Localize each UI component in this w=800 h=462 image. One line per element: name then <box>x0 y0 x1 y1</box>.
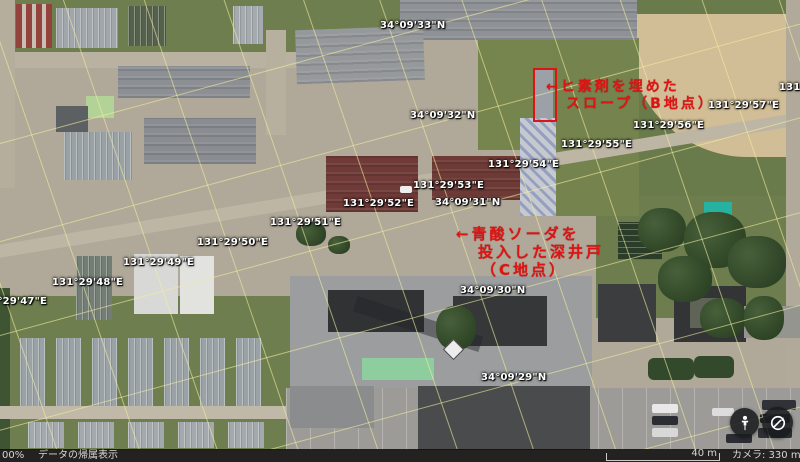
road <box>0 0 15 188</box>
road <box>266 30 286 135</box>
tree <box>728 236 786 288</box>
vehicle <box>400 186 412 193</box>
tree <box>744 296 784 340</box>
greenhouse <box>78 422 114 448</box>
vehicle <box>652 428 678 437</box>
annotation-site-c: ←青酸ソーダを 投入した深井戸 （C地点） <box>456 225 604 279</box>
pegman-icon <box>736 414 754 432</box>
compass-icon <box>768 413 788 433</box>
grid-label: 131°29'54"E <box>488 159 559 170</box>
vehicle <box>652 416 678 425</box>
grid-label: 131°29'57"E <box>708 100 779 111</box>
scale-label: 40 m <box>691 447 717 460</box>
status-bar: 00% データの帰属表示 40 m カメラ: 330 m <box>0 449 800 462</box>
building <box>56 106 88 132</box>
attribution-link[interactable]: データの帰属表示 <box>38 449 118 462</box>
grid-label: 131°29'56"E <box>633 120 704 131</box>
greenhouse <box>178 422 214 448</box>
greenhouse <box>64 132 132 180</box>
greenhouse <box>28 422 64 448</box>
grid-label: 131°29'47"E <box>0 296 47 307</box>
grid-label: 34°09'30"N <box>460 285 525 296</box>
tree <box>700 298 746 338</box>
grid-label: 131°29'55"E <box>561 139 632 150</box>
annotation-site-c-line1: ←青酸ソーダを <box>456 225 604 243</box>
greenhouse <box>92 338 117 406</box>
tree <box>638 208 686 252</box>
grid-label: 34°09'33"N <box>380 20 445 31</box>
building <box>598 284 656 342</box>
greenhouse <box>164 338 189 406</box>
pegman-button[interactable] <box>730 408 759 437</box>
map-viewport[interactable]: 34°09'33"N34°09'32"N34°09'31"N34°09'30"N… <box>0 0 800 462</box>
grid-label: 34°09'31"N <box>435 197 500 208</box>
building <box>16 4 52 48</box>
greenhouse <box>228 422 264 448</box>
grid-label: 34°09'29"N <box>481 372 546 383</box>
annotation-site-b: ←ヒ素剤を埋めた スロープ（B地点） <box>546 79 715 113</box>
greenhouse <box>128 338 153 406</box>
annotation-site-b-line2: スロープ（B地点） <box>566 96 715 113</box>
grid-label: 131°29'49"E <box>123 257 194 268</box>
annotation-site-b-line1: ←ヒ素剤を埋めた <box>546 79 715 96</box>
building <box>118 66 250 98</box>
hedge-row <box>694 356 734 378</box>
grass-field <box>553 38 639 216</box>
greenhouse <box>56 338 81 406</box>
greenhouse <box>128 6 166 46</box>
stream-percent: 00% <box>2 449 24 462</box>
building <box>295 26 425 84</box>
grid-label: 131°29'53"E <box>413 180 484 191</box>
grid-label: 131°29'52"E <box>343 198 414 209</box>
building <box>362 358 434 380</box>
annotation-site-c-line2: 投入した深井戸 <box>478 243 604 261</box>
greenhouse <box>56 8 118 48</box>
building <box>144 118 256 164</box>
road <box>0 406 298 419</box>
road <box>786 0 800 450</box>
camera-altitude: カメラ: 330 m <box>732 449 800 462</box>
building <box>290 386 374 428</box>
greenhouse <box>20 338 45 406</box>
building <box>86 96 114 118</box>
greenhouse <box>76 256 112 320</box>
greenhouse <box>236 338 261 406</box>
hedge-row <box>0 288 10 450</box>
greenhouse <box>128 422 164 448</box>
vehicle <box>652 404 678 413</box>
tree <box>658 256 712 302</box>
greenhouse <box>233 6 263 44</box>
tree <box>328 236 350 254</box>
grid-label: 131°29'50"E <box>197 237 268 248</box>
compass-button[interactable] <box>762 407 793 438</box>
grid-label: 131°29'58"E <box>779 82 800 93</box>
grid-label: 34°09'32"N <box>410 110 475 121</box>
annotation-site-c-line3: （C地点） <box>481 261 604 279</box>
grid-label: 131°29'51"E <box>270 217 341 228</box>
building <box>418 386 590 450</box>
hedge-row <box>648 358 694 380</box>
grid-label: 131°29'48"E <box>52 277 123 288</box>
greenhouse <box>200 338 225 406</box>
